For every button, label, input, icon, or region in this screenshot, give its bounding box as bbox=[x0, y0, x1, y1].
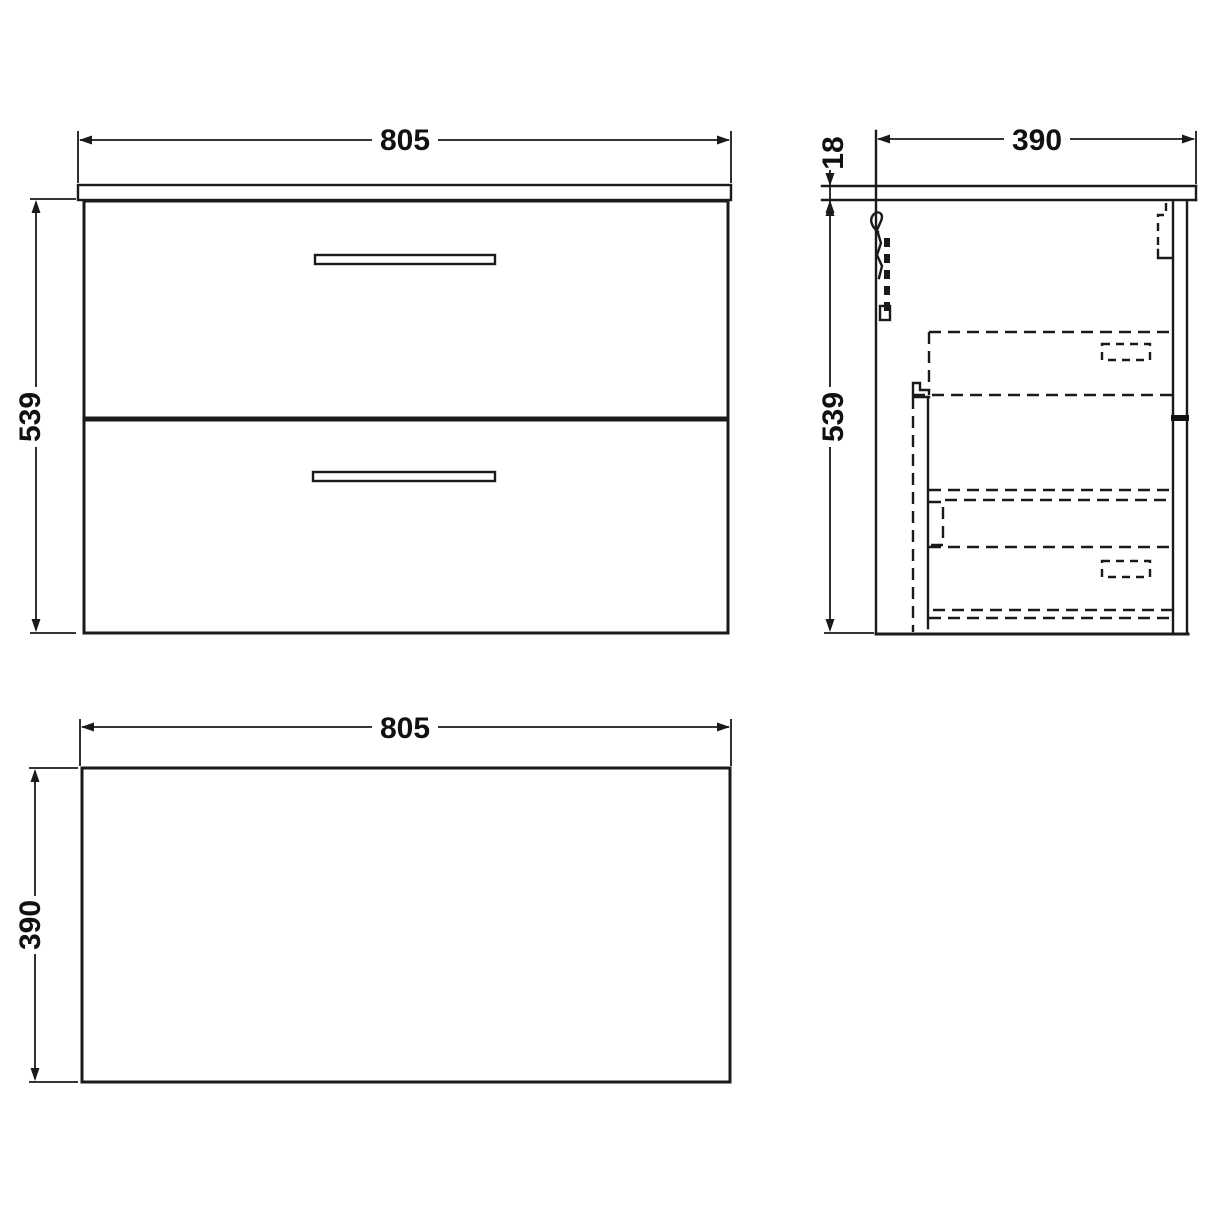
side-countertop bbox=[822, 186, 1196, 200]
countertop-thickness-label: 18 bbox=[817, 136, 850, 169]
plan-view: 805 390 bbox=[14, 712, 731, 1082]
arrowhead bbox=[717, 723, 730, 732]
front-width-dimension: 805 bbox=[78, 124, 731, 183]
plan-width-label: 805 bbox=[380, 712, 430, 745]
side-drawer-fronts bbox=[1171, 202, 1189, 634]
side-view: 390 18 539 bbox=[817, 124, 1196, 634]
side-height-dimension: 539 bbox=[817, 203, 874, 633]
vanity-dimension-drawing: 805 539 390 bbox=[0, 0, 1224, 1224]
arrowhead bbox=[31, 1068, 40, 1081]
front-height-dimension: 539 bbox=[14, 199, 76, 633]
front-view: 805 539 bbox=[14, 124, 731, 633]
side-depth-dimension: 390 bbox=[877, 124, 1196, 184]
front-width-label: 805 bbox=[380, 124, 430, 157]
plan-depth-dimension: 390 bbox=[14, 768, 78, 1082]
side-height-label: 539 bbox=[817, 392, 850, 442]
upper-drawer-handle bbox=[315, 255, 495, 264]
lower-drawer-handle bbox=[313, 472, 495, 481]
plan-countertop-outline bbox=[82, 768, 730, 1082]
drawer-front-gap bbox=[1171, 415, 1189, 421]
runner-bracket-hidden bbox=[929, 502, 943, 545]
arrowhead bbox=[32, 619, 41, 632]
plan-width-dimension: 805 bbox=[80, 712, 731, 766]
arrowhead bbox=[81, 723, 94, 732]
arrowhead bbox=[826, 619, 835, 632]
front-height-label: 539 bbox=[14, 392, 47, 442]
plan-depth-label: 390 bbox=[14, 900, 47, 950]
hidden-notch-outline bbox=[1158, 203, 1166, 250]
arrowhead bbox=[826, 173, 835, 186]
front-countertop bbox=[78, 185, 731, 200]
arrowhead bbox=[877, 135, 890, 144]
arrowhead bbox=[79, 136, 92, 145]
upper-handle-hidden bbox=[1102, 344, 1150, 360]
wall-mount-bracket bbox=[871, 212, 890, 320]
arrowhead bbox=[31, 769, 40, 782]
arrowhead bbox=[1182, 135, 1195, 144]
arrowhead bbox=[717, 136, 730, 145]
countertop-thickness-dimension: 18 bbox=[817, 136, 850, 213]
hidden-drawer-boxes bbox=[913, 332, 1172, 632]
side-depth-label: 390 bbox=[1012, 124, 1062, 157]
drawing-canvas: 805 539 390 bbox=[0, 0, 1224, 1224]
notch-step bbox=[1158, 250, 1172, 258]
arrowhead bbox=[32, 200, 41, 213]
lower-handle-hidden bbox=[1102, 561, 1150, 577]
